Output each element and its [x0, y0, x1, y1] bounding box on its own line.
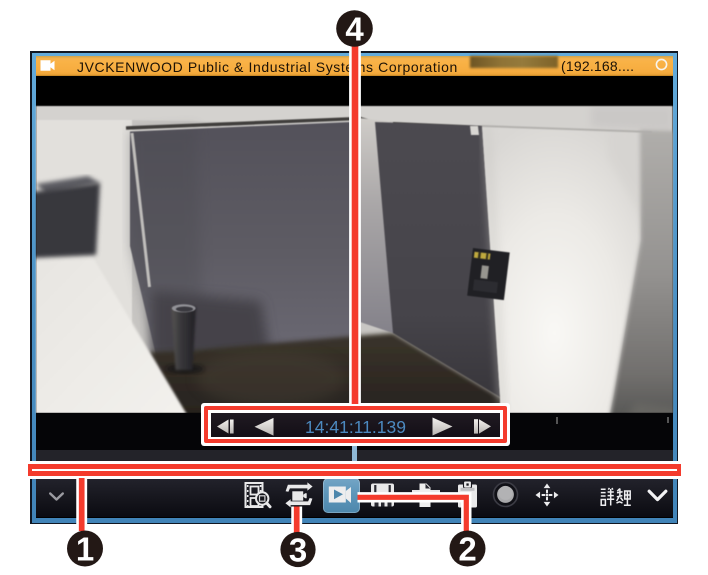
svg-text:1: 1	[76, 531, 94, 568]
svg-text:4: 4	[345, 11, 364, 48]
svg-text:2: 2	[458, 531, 476, 568]
svg-text:3: 3	[289, 532, 307, 569]
